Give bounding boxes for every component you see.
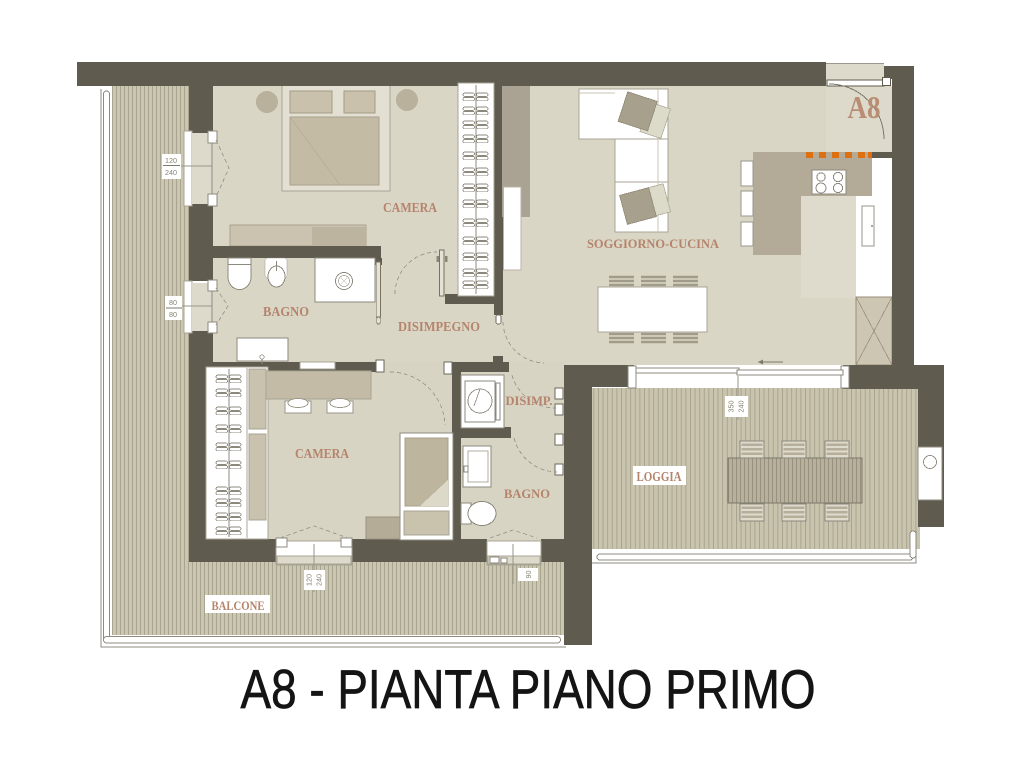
svg-text:CAMERA: CAMERA [295, 447, 350, 462]
svg-text:BAGNO: BAGNO [263, 305, 309, 320]
svg-text:350: 350 [727, 401, 736, 413]
svg-text:90: 90 [524, 571, 533, 579]
svg-text:120: 120 [305, 574, 314, 586]
svg-text:BALCONE: BALCONE [212, 599, 265, 613]
svg-text:CAMERA: CAMERA [383, 201, 438, 216]
svg-text:A8: A8 [848, 89, 881, 125]
svg-text:DISIMP.: DISIMP. [506, 393, 553, 408]
svg-text:240: 240 [165, 168, 177, 177]
svg-text:A8 - PIANTA PIANO PRIMO: A8 - PIANTA PIANO PRIMO [241, 658, 816, 720]
svg-text:80: 80 [169, 298, 177, 307]
svg-text:SOGGIORNO-CUCINA: SOGGIORNO-CUCINA [587, 236, 720, 251]
svg-text:BAGNO: BAGNO [504, 486, 550, 501]
svg-text:240: 240 [315, 574, 324, 586]
svg-text:DISIMPEGNO: DISIMPEGNO [398, 320, 480, 335]
svg-text:120: 120 [165, 156, 177, 165]
svg-text:80: 80 [169, 310, 177, 319]
svg-text:LOGGIA: LOGGIA [637, 469, 682, 484]
svg-text:240: 240 [737, 401, 746, 413]
